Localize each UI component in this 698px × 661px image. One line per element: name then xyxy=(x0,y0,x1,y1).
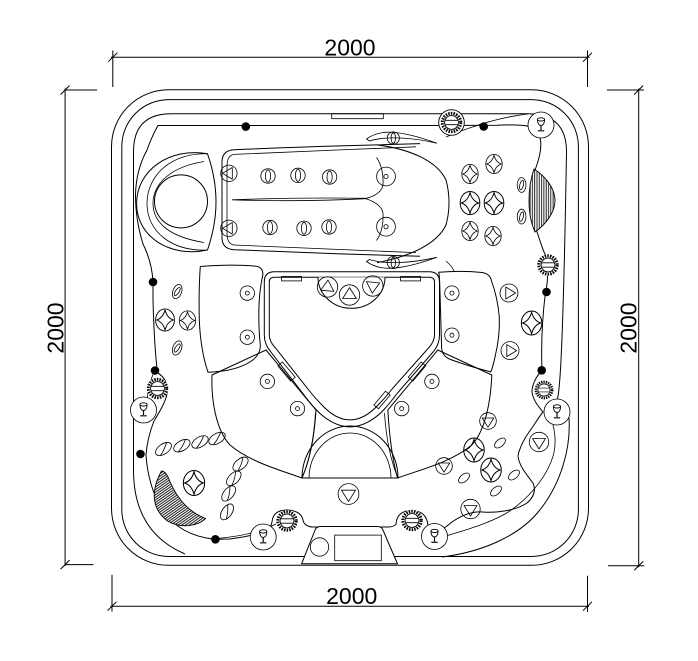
svg-text:2000: 2000 xyxy=(42,302,68,353)
svg-text:2000: 2000 xyxy=(615,302,641,353)
svg-text:2000: 2000 xyxy=(324,35,375,61)
svg-text:2000: 2000 xyxy=(326,583,377,609)
